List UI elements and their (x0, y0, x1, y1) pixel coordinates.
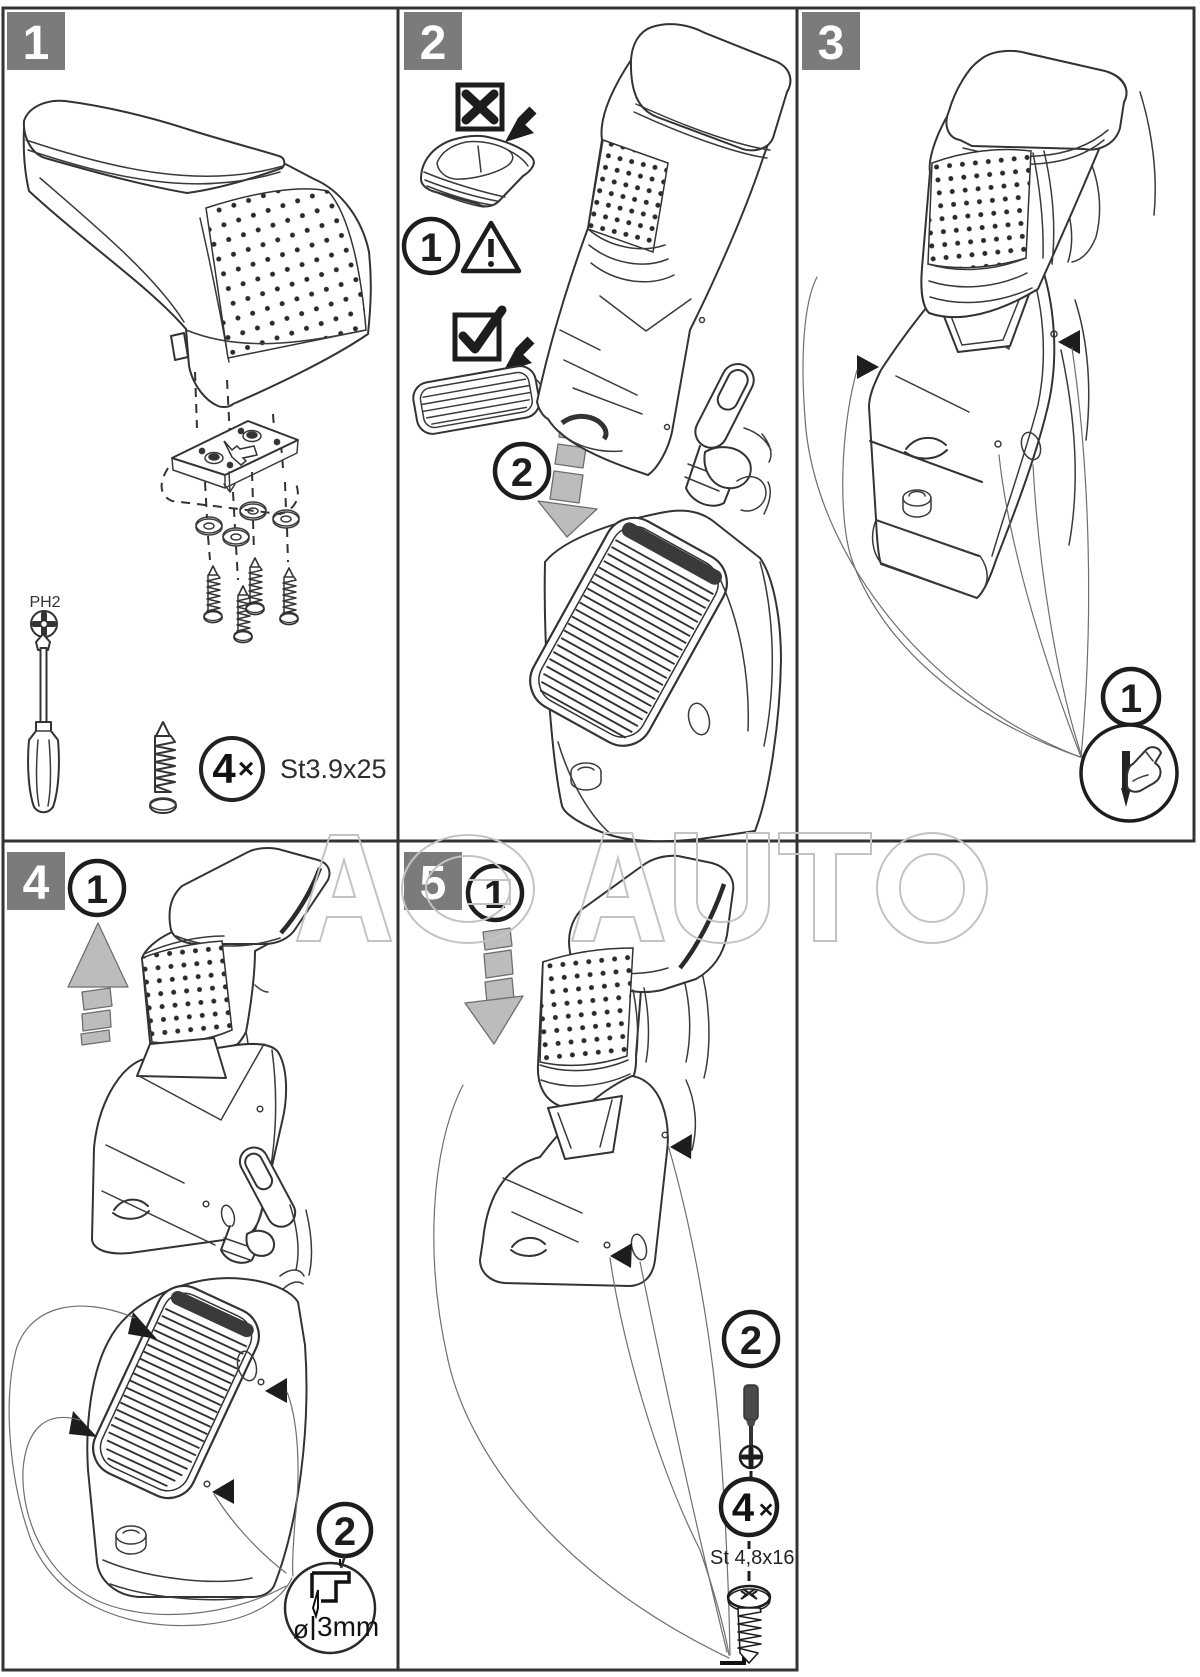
svg-text:St 4,8x16: St 4,8x16 (710, 1547, 795, 1569)
svg-text:1: 1 (1120, 677, 1142, 721)
svg-text:St3.9x25: St3.9x25 (280, 754, 387, 784)
svg-text:2: 2 (420, 17, 447, 70)
svg-text:3mm: 3mm (317, 1611, 379, 1642)
svg-text:PH2: PH2 (29, 594, 60, 611)
svg-text:2: 2 (511, 451, 533, 495)
svg-text:4: 4 (23, 857, 50, 910)
svg-text:1: 1 (86, 868, 108, 912)
svg-text:1: 1 (420, 226, 442, 270)
svg-text:×: × (238, 753, 254, 784)
svg-text:2: 2 (740, 1319, 762, 1363)
svg-text:×: × (759, 1496, 774, 1524)
svg-text:1: 1 (23, 17, 50, 70)
svg-text:2: 2 (334, 1510, 356, 1554)
svg-text:5: 5 (420, 857, 447, 910)
svg-text:4: 4 (212, 745, 236, 792)
svg-text:ø: ø (293, 1614, 309, 1644)
svg-text:3: 3 (818, 17, 845, 70)
svg-text:4: 4 (732, 1486, 755, 1530)
